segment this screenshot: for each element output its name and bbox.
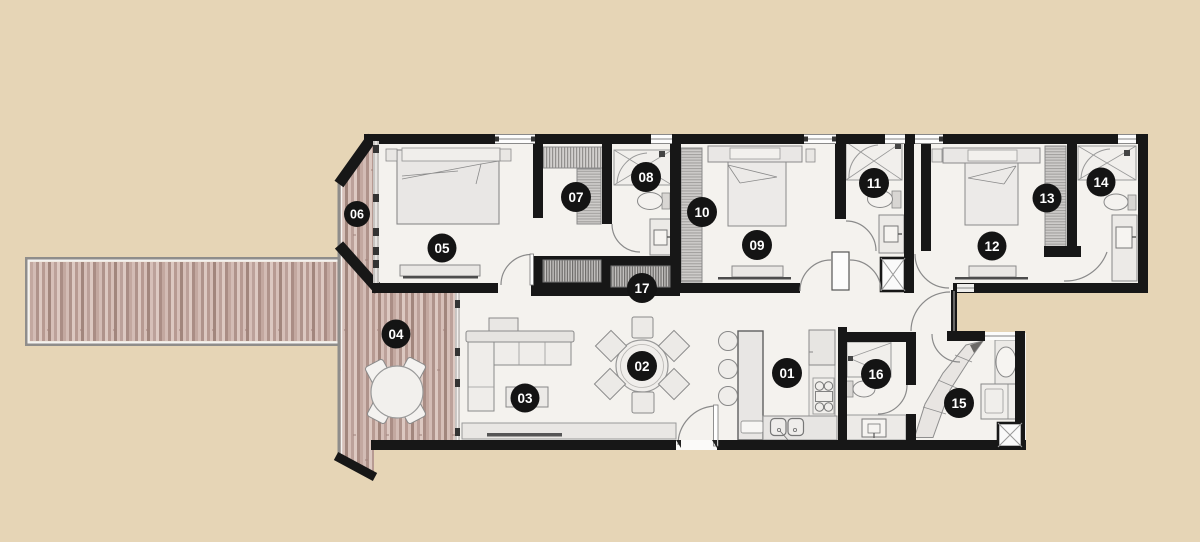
svg-text:05: 05 [434,241,450,256]
svg-text:09: 09 [749,238,764,253]
svg-text:11: 11 [867,176,882,191]
svg-text:03: 03 [517,391,533,406]
svg-text:02: 02 [634,359,649,374]
svg-text:10: 10 [694,205,709,220]
svg-text:08: 08 [638,170,654,185]
svg-text:13: 13 [1039,191,1055,206]
svg-text:01: 01 [779,366,795,381]
svg-text:07: 07 [568,190,583,205]
svg-text:06: 06 [350,208,364,222]
svg-text:12: 12 [984,239,999,254]
svg-text:17: 17 [634,281,649,296]
svg-text:04: 04 [388,327,404,342]
svg-text:14: 14 [1093,175,1109,190]
svg-text:16: 16 [868,367,884,382]
svg-text:15: 15 [951,396,967,411]
